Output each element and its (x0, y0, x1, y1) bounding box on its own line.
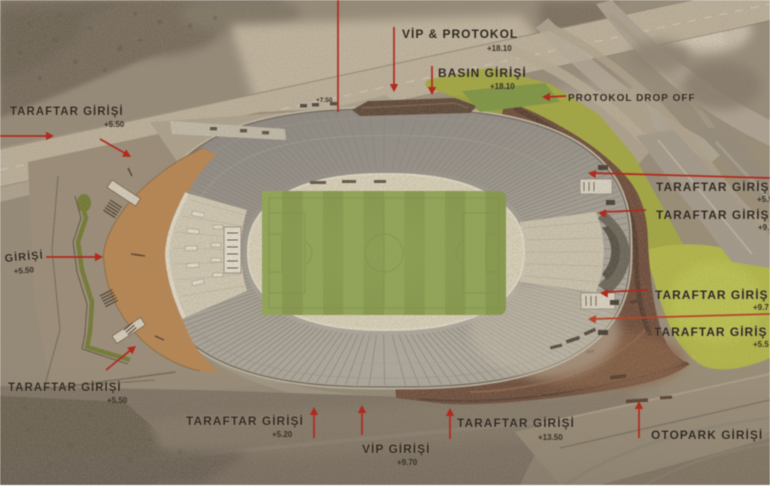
svg-text:TARAFTAR GİRİŞİ: TARAFTAR GİRİŞİ (10, 105, 124, 118)
svg-text:TARAFTAR GİRİŞİ: TARAFTAR GİRİŞİ (8, 381, 122, 394)
svg-text:+13.50: +13.50 (538, 433, 563, 442)
svg-text:PROTOKOL DROP OFF: PROTOKOL DROP OFF (568, 93, 696, 104)
svg-text:+7.50: +7.50 (316, 97, 333, 104)
svg-text:VİP & PROTOKOL: VİP & PROTOKOL (402, 26, 518, 41)
svg-text:+5.20: +5.20 (272, 430, 293, 439)
svg-text:TARAFTAR GİRİŞ: TARAFTAR GİRİŞ (655, 287, 769, 302)
svg-text:TARAFTAR GİRİŞİ: TARAFTAR GİRİŞİ (186, 413, 304, 428)
svg-text:+5.50: +5.50 (13, 265, 34, 276)
svg-text:+9.7: +9.7 (758, 223, 770, 232)
svg-text:+5.5: +5.5 (753, 340, 769, 349)
svg-text:+18.10: +18.10 (490, 82, 515, 91)
svg-text:TARAFTAR GİRİŞ: TARAFTAR GİRİŞ (654, 324, 768, 339)
svg-text:TARAFTAR GİRİŞ: TARAFTAR GİRİŞ (656, 179, 770, 194)
svg-text:OTOPARK GİRİŞİ: OTOPARK GİRİŞİ (651, 427, 763, 442)
svg-text:+9.7: +9.7 (753, 303, 769, 312)
svg-text:+9.70: +9.70 (397, 458, 418, 467)
svg-text:+5.50: +5.50 (107, 396, 128, 405)
svg-text:+5.5: +5.5 (757, 195, 770, 204)
svg-text:+5.50: +5.50 (104, 120, 125, 129)
svg-text:TARAFTAR GİRİŞİ: TARAFTAR GİRİŞİ (457, 415, 575, 430)
svg-text:TARAFTAR GİRİŞ: TARAFTAR GİRİŞ (656, 207, 770, 222)
svg-text:VİP GİRİŞİ: VİP GİRİŞİ (362, 441, 430, 456)
svg-text:+18.10: +18.10 (487, 44, 512, 53)
svg-text:BASIN GİRİŞİ: BASIN GİRİŞİ (438, 65, 527, 80)
